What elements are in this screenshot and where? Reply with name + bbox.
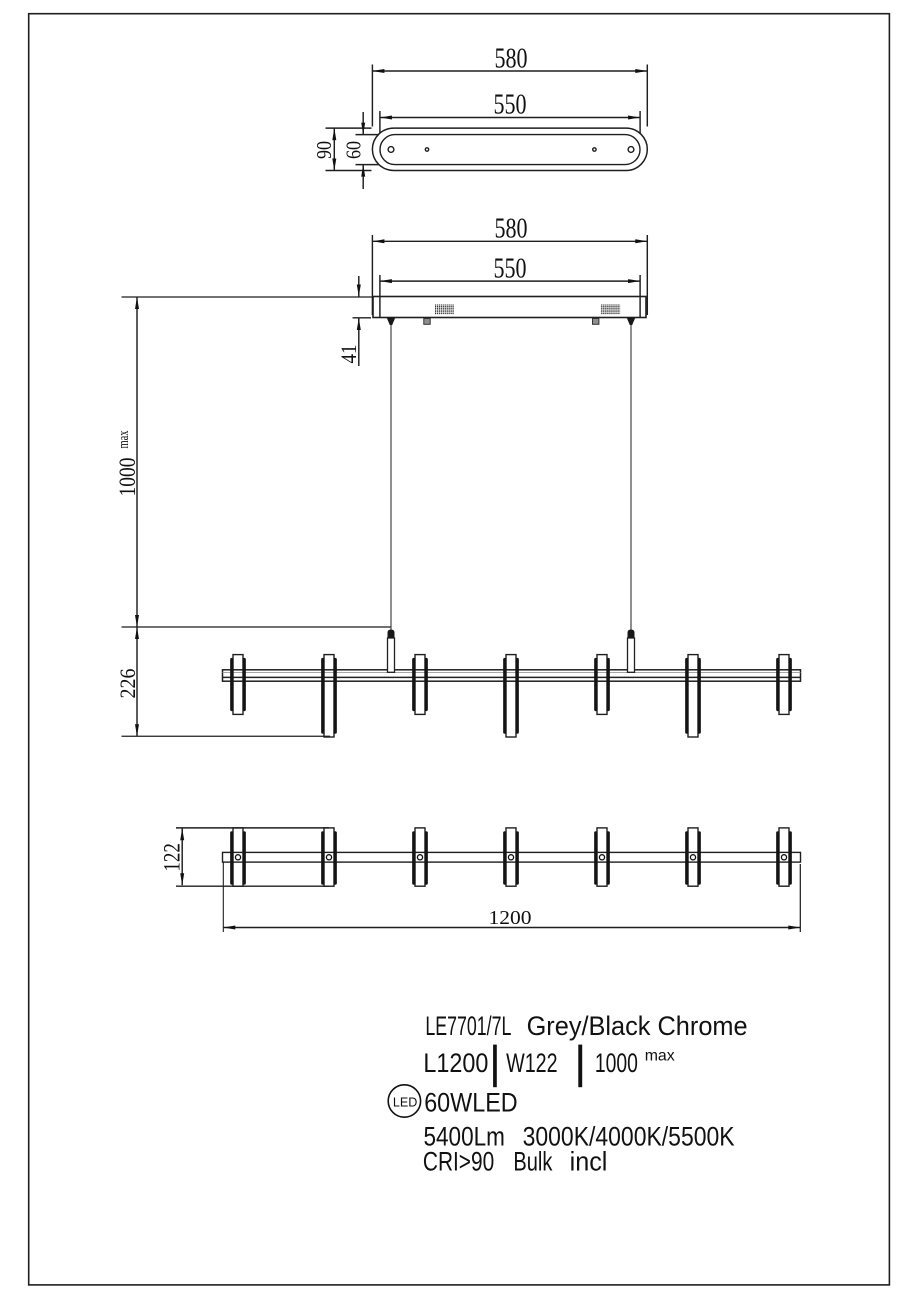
svg-text:41: 41 (336, 345, 361, 364)
svg-text:max: max (116, 430, 132, 448)
svg-text:1000: 1000 (595, 1048, 638, 1078)
svg-text:580: 580 (495, 44, 528, 75)
svg-text:LE7701/7L: LE7701/7L (425, 1011, 511, 1041)
svg-text:550: 550 (494, 254, 527, 285)
svg-text:L1200: L1200 (423, 1048, 488, 1078)
svg-text:550: 550 (494, 90, 527, 121)
svg-text:max: max (645, 1047, 675, 1064)
svg-text:60: 60 (342, 141, 366, 159)
svg-text:incl: incl (570, 1147, 608, 1177)
svg-text:60WLED: 60WLED (424, 1087, 518, 1117)
svg-text:122: 122 (159, 843, 184, 872)
svg-text:1000: 1000 (115, 458, 140, 497)
svg-text:226: 226 (115, 669, 140, 699)
svg-text:3000K/4000K/5500K: 3000K/4000K/5500K (523, 1122, 735, 1152)
svg-text:LED: LED (393, 1095, 418, 1110)
svg-text:1200: 1200 (489, 907, 532, 929)
svg-text:580: 580 (495, 214, 528, 245)
svg-text:Bulk: Bulk (513, 1147, 553, 1177)
svg-text:90: 90 (312, 141, 336, 159)
svg-text:CRI>90: CRI>90 (423, 1147, 494, 1177)
svg-text:Grey/Black Chrome: Grey/Black Chrome (527, 1011, 748, 1041)
svg-text:W122: W122 (506, 1048, 557, 1078)
